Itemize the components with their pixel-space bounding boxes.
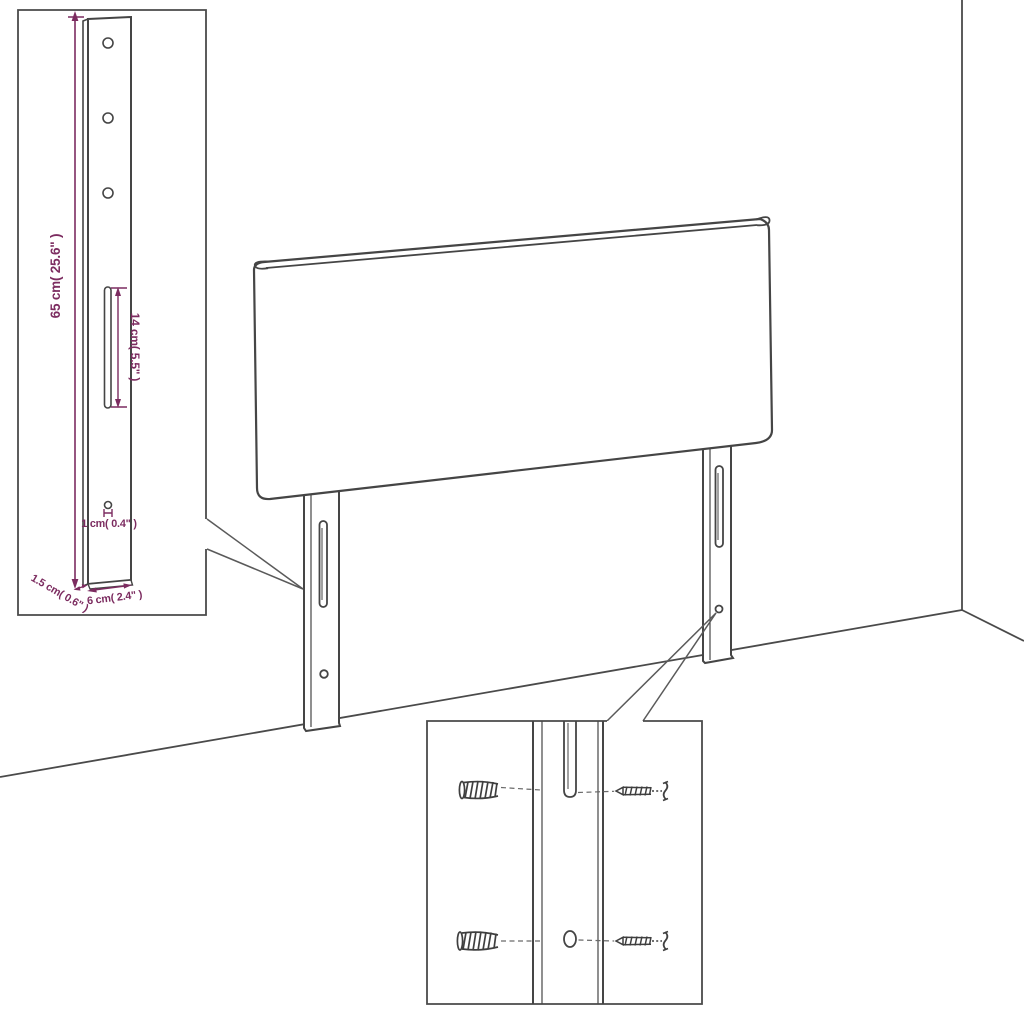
- right-leg-body: [703, 436, 733, 663]
- left-leg-body: [304, 478, 340, 731]
- inset-leg-detail: 65 cm( 25.6" ) 14 cm( 5.5" ) 1 cm( 0.4" …: [18, 10, 206, 615]
- inset2-callout-line-right: [643, 613, 716, 721]
- headboard-dimension-diagram: 65 cm( 25.6" ) 14 cm( 5.5" ) 1 cm( 0.4" …: [0, 0, 1024, 1024]
- inset2-callout-line-left: [607, 613, 716, 721]
- right-leg: [703, 436, 733, 663]
- dim-label-hole: 1 cm( 0.4" ): [81, 518, 137, 530]
- left-leg: [304, 478, 340, 731]
- dim-label-height: 65 cm( 25.6" ): [48, 234, 63, 319]
- headboard-panel-face: [254, 219, 772, 499]
- headboard-panel: [254, 217, 772, 499]
- inset1-callout-line-lower: [207, 549, 303, 589]
- inset-mounting-detail: [427, 721, 702, 1004]
- callout-lines: [207, 519, 716, 721]
- bracket-front-face: [88, 17, 131, 584]
- diagram-page: 65 cm( 25.6" ) 14 cm( 5.5" ) 1 cm( 0.4" …: [0, 0, 1024, 1024]
- inset1-callout-line-upper: [207, 519, 303, 589]
- dim-label-slot: 14 cm( 5.5" ): [128, 313, 142, 382]
- floor-line-right: [962, 610, 1024, 641]
